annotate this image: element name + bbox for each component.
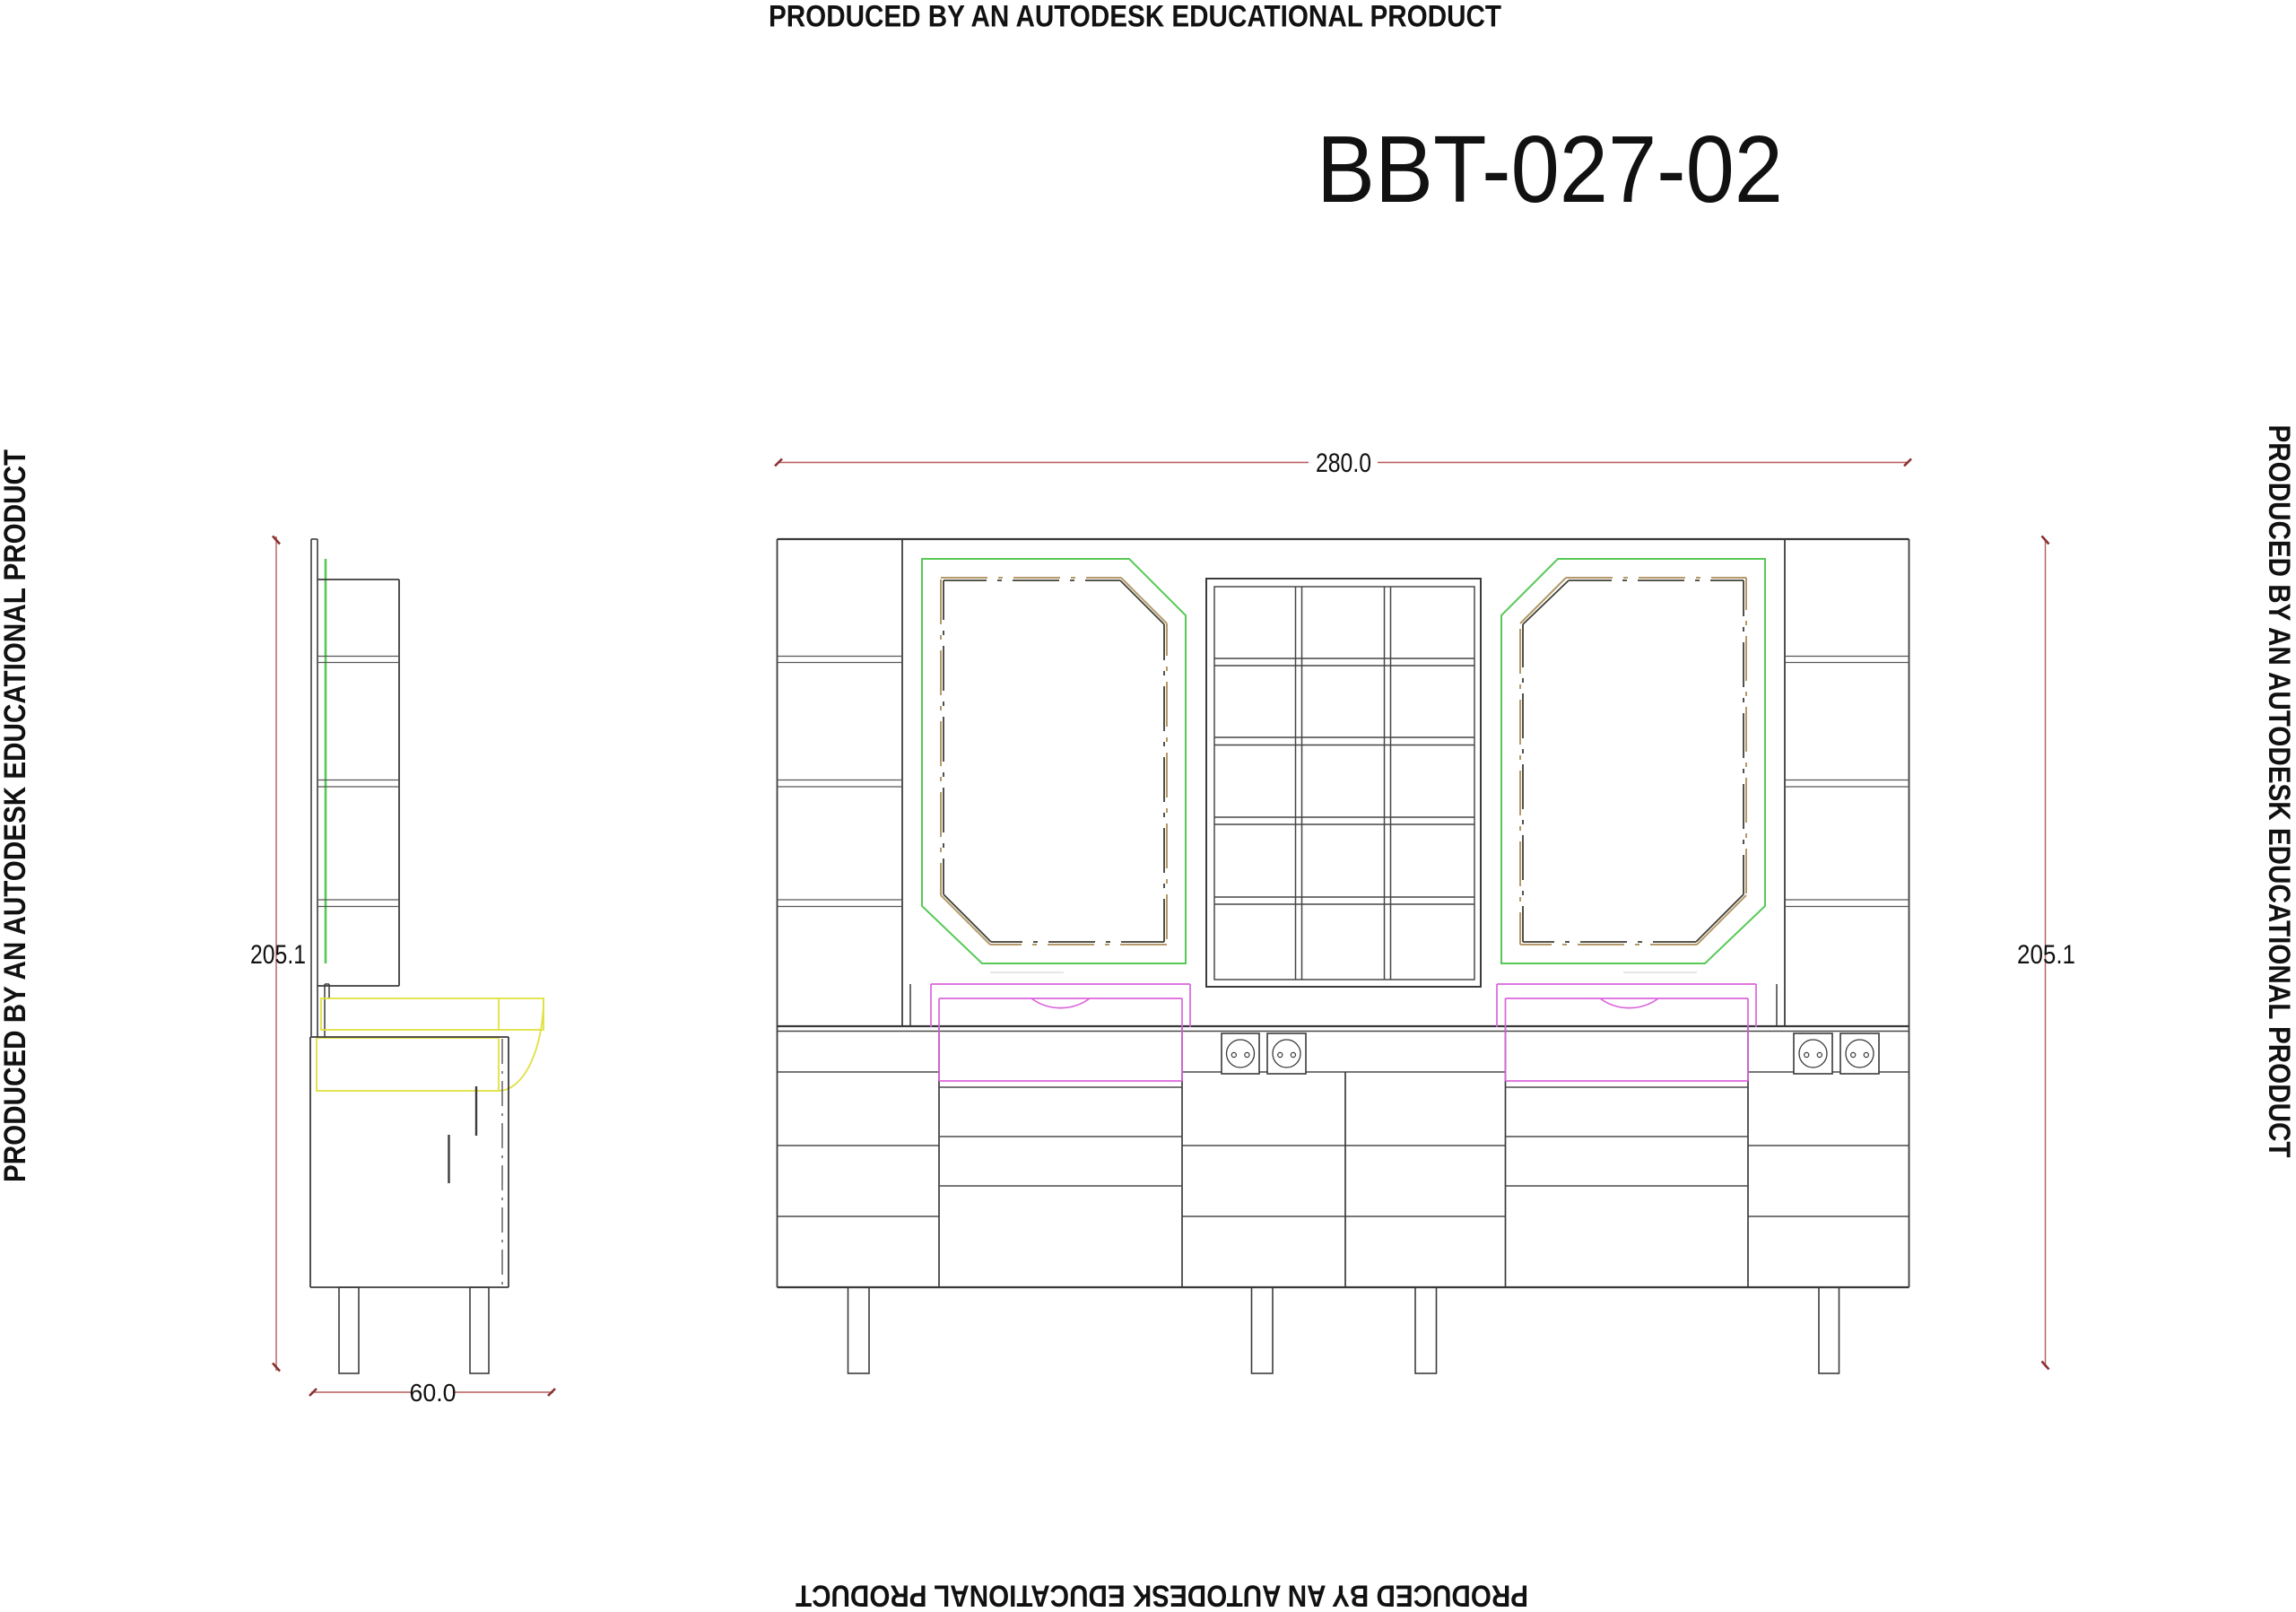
- svg-text:BBT-027-02: BBT-027-02: [1317, 117, 1783, 222]
- svg-text:PRODUCED BY AN AUTODESK EDUCAT: PRODUCED BY AN AUTODESK EDUCATIONAL PROD…: [2262, 425, 2296, 1158]
- svg-text:PRODUCED BY AN AUTODESK EDUCAT: PRODUCED BY AN AUTODESK EDUCATIONAL PROD…: [769, 0, 1501, 34]
- svg-text:PRODUCED BY AN AUTODESK EDUCAT: PRODUCED BY AN AUTODESK EDUCATIONAL PROD…: [0, 449, 32, 1182]
- svg-text:205.1: 205.1: [250, 940, 306, 970]
- svg-text:60.0: 60.0: [410, 1379, 457, 1407]
- svg-text:PRODUCED BY AN AUTODESK EDUCAT: PRODUCED BY AN AUTODESK EDUCATIONAL PROD…: [796, 1579, 1528, 1612]
- svg-text:205.1: 205.1: [2017, 940, 2075, 970]
- svg-text:280.0: 280.0: [1316, 449, 1371, 478]
